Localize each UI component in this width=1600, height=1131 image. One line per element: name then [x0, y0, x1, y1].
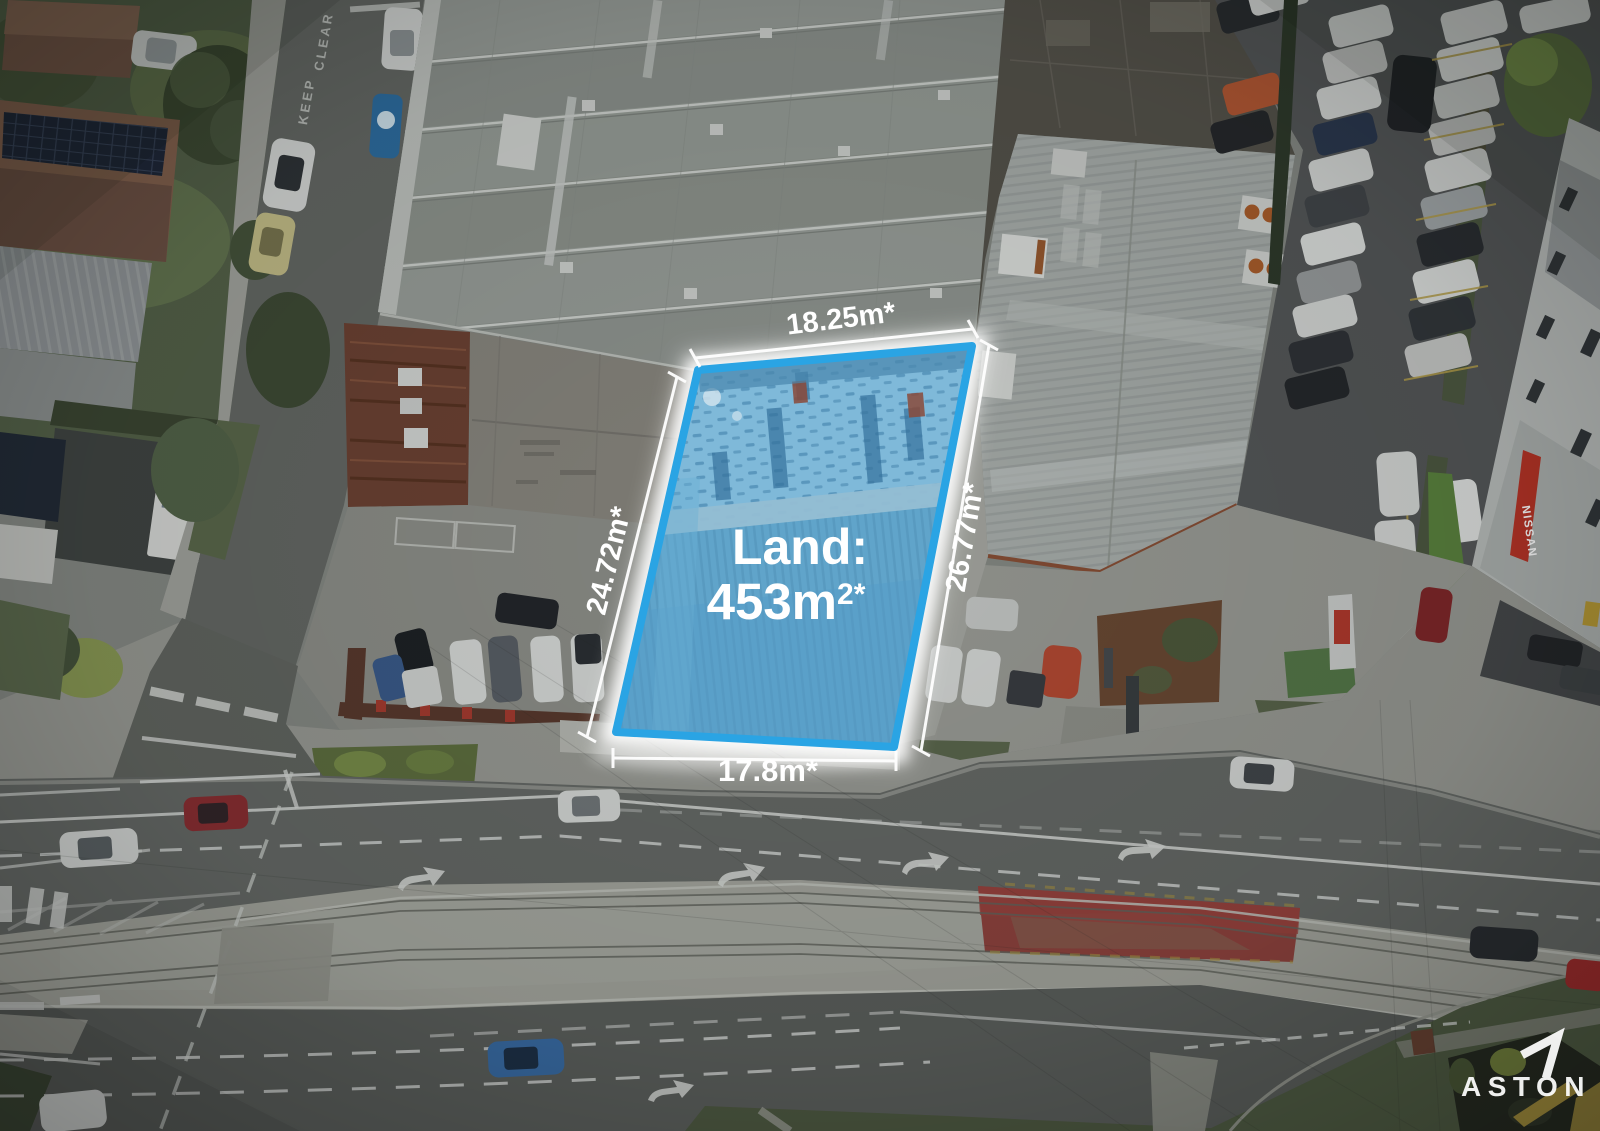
svg-text:ASTON: ASTON — [1461, 1071, 1591, 1102]
svg-text:17.8m*: 17.8m* — [718, 753, 819, 788]
svg-text:Land:: Land: — [732, 519, 868, 575]
